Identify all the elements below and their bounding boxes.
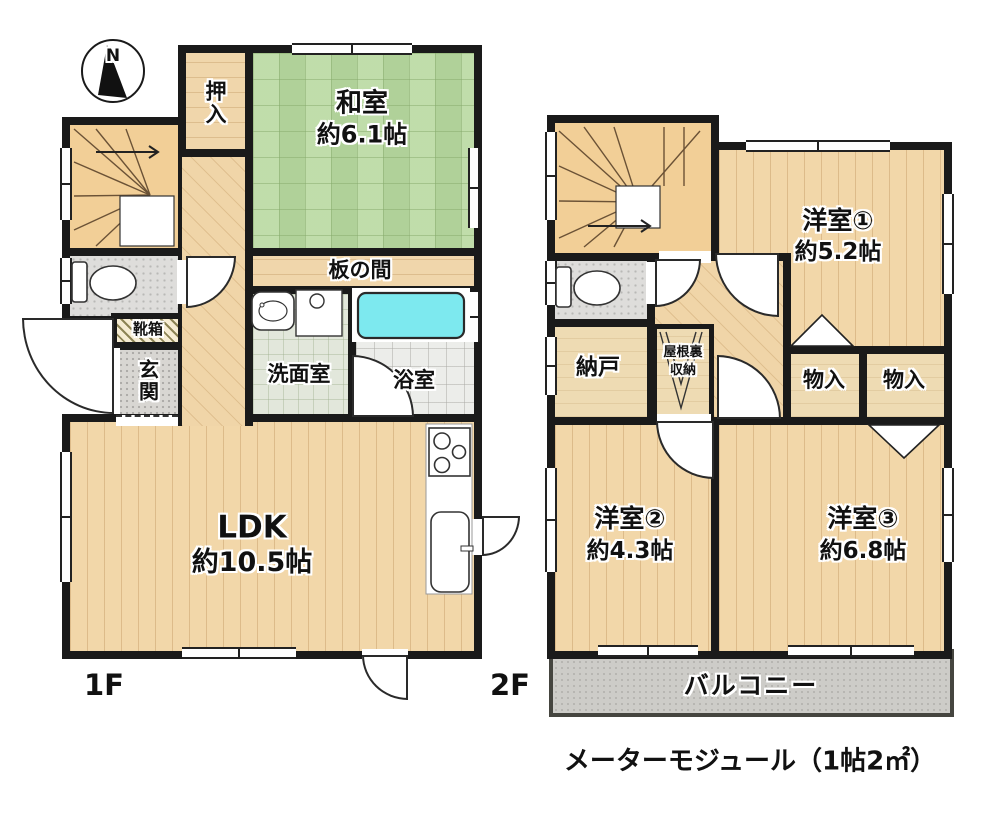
attic-label-line1: 屋根裏 — [663, 346, 702, 360]
floorplan-canvas: N 押入 和室 約6.1帖 板の間 洗面室 浴室 靴箱 玄関 LDK 約10.5… — [0, 0, 999, 815]
terrace-door-arc — [362, 655, 408, 700]
kitchen-door-arc — [482, 516, 520, 556]
balcony-label: バルコニー — [684, 673, 819, 699]
floor2-tag: 2F — [490, 668, 530, 702]
yoshitsu2-size-label: 約4.3帖 — [587, 539, 674, 563]
monoire-right-label: 物入 — [883, 369, 925, 391]
entrance-door-arc — [22, 318, 114, 414]
washitsu-top-window — [292, 43, 412, 55]
yoshitsu3-right-window — [942, 468, 954, 562]
toilet2-left-window — [545, 261, 557, 305]
shoe-cabinet-label: 靴箱 — [133, 322, 163, 338]
yoshitsu3-balcony-window — [788, 645, 914, 657]
bath-label: 浴室 — [393, 369, 435, 391]
nando-left-window — [545, 337, 557, 395]
ldk-left-window — [60, 452, 72, 582]
ldk-label: LDK — [217, 512, 287, 545]
washitsu-room — [245, 45, 482, 260]
module-note: メーターモジュール（1帖2㎡） — [564, 741, 936, 778]
staircase-1f — [62, 117, 186, 260]
yoshitsu1-label: 洋室① — [802, 208, 873, 234]
staircase-2f — [547, 115, 719, 261]
ldk-bottom-window — [182, 647, 296, 659]
toilet1-left-window — [60, 258, 72, 304]
ldk-size-label: 約10.5帖 — [192, 549, 313, 577]
nando-label: 納戸 — [576, 356, 620, 379]
floor1-tag: 1F — [84, 668, 124, 702]
toilet-room-2f — [547, 253, 655, 327]
genkan-label: 玄関 — [137, 359, 158, 403]
senmen-room — [245, 286, 360, 426]
compass-north-label: N — [106, 48, 120, 66]
monoire-left-label: 物入 — [803, 369, 845, 391]
yoshitsu2-balcony-window — [598, 645, 698, 657]
oshiire-label: 押入 — [204, 80, 226, 126]
washitsu-label: 和室 — [336, 90, 388, 117]
yoshitsu1-size-label: 約5.2帖 — [795, 240, 882, 264]
yoshitsu1-top-window — [746, 140, 890, 152]
itanoma-label: 板の間 — [329, 259, 392, 281]
stairs1-left-window — [60, 148, 72, 220]
yoshitsu2-left-window — [545, 468, 557, 572]
bath-right-window — [468, 292, 480, 342]
yoshitsu2-label: 洋室② — [594, 506, 665, 532]
stairs2-left-window — [545, 132, 557, 220]
attic-label-line2: 収納 — [670, 364, 696, 378]
yoshitsu1-right-window — [942, 194, 954, 294]
senmen-label: 洗面室 — [268, 363, 331, 385]
yoshitsu3-size-label: 約6.8帖 — [820, 539, 907, 563]
washitsu-right-window — [468, 148, 480, 228]
yoshitsu3-label: 洋室③ — [827, 506, 898, 532]
washitsu-size-label: 約6.1帖 — [317, 122, 408, 147]
genkan-ldk-opening — [116, 415, 178, 426]
